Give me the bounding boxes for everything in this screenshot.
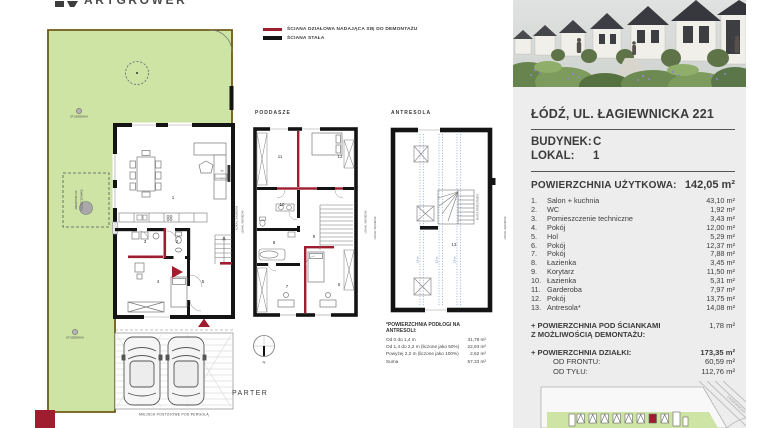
tv-icon xyxy=(228,165,231,182)
svg-text:5: 5 xyxy=(202,279,205,284)
svg-text:STUDZIENKA: STUDZIENKA xyxy=(66,336,84,340)
svg-text:10: 10 xyxy=(280,202,285,207)
svg-text:1,4 m: 1,4 m xyxy=(453,257,457,264)
plan-sheet: ARTGROWER ŚCIANA DZIAŁOWA NADAJĄCA SIĘ D… xyxy=(0,0,760,428)
svg-text:11: 11 xyxy=(278,154,283,159)
antresola-area-footnote: *POWIERZCHNIA PODŁOGI NA ANTRESOLI: Od 0… xyxy=(386,322,486,365)
svg-text:LOKAL SĄSIEDNI: LOKAL SĄSIEDNI xyxy=(503,216,507,239)
walls-extra-value: 1,78 m² xyxy=(709,321,735,339)
svg-text:12: 12 xyxy=(338,154,343,159)
highlighted-unit xyxy=(649,414,657,423)
info-panel: ŁÓDŹ, UL. ŁAGIEWNICKA 221 BUDYNEK:C LOKA… xyxy=(513,0,746,428)
address: ŁÓDŹ, UL. ŁAGIEWNICKA 221 xyxy=(531,107,735,121)
svg-text:13: 13 xyxy=(452,242,457,247)
usable-area-value: 142,05 m² xyxy=(685,179,735,191)
svg-text:ŁAGIEWNICKA: ŁAGIEWNICKA xyxy=(726,395,746,415)
svg-text:3: 3 xyxy=(144,239,147,244)
unit-specs: BUDYNEK:C LOKAL:1 xyxy=(531,135,735,163)
artgrower-logo-icon xyxy=(54,0,80,7)
divider xyxy=(531,171,735,172)
svg-text:LOKAL SĄSIEDNI: LOKAL SĄSIEDNI xyxy=(235,206,239,231)
development-photo xyxy=(513,0,746,87)
walls-extra-area: + POWIERZCHNIA POD ŚCIANKAMI Z MOŻLIWOŚC… xyxy=(531,321,735,339)
plot-total-row: + POWIERZCHNIA DZIAŁKI:173,35 m² xyxy=(531,348,735,357)
svg-text:STUDZIENKA: STUDZIENKA xyxy=(70,115,88,119)
logo-text: ARTGROWER xyxy=(84,0,204,7)
parter-caption: PARTER xyxy=(232,390,268,397)
room-table: 1.Salon + kuchnia43,10 m² 2.WC1,92 m² 3.… xyxy=(531,197,735,313)
room-row: 1.Salon + kuchnia43,10 m² xyxy=(531,197,735,206)
house-parter: TV KOMINEK xyxy=(113,123,234,320)
car-icon xyxy=(122,337,162,405)
footnote-row: Od 0 do 1,4 m31,78 m² xyxy=(386,336,486,343)
building-row: BUDYNEK:C xyxy=(531,135,735,149)
svg-text:LOKAL SĄSIEDNI: LOKAL SĄSIEDNI xyxy=(373,216,377,239)
svg-text:LOKAL SĄSIEDNI: LOKAL SĄSIEDNI xyxy=(364,210,368,233)
svg-text:TV: TV xyxy=(220,169,224,173)
footnote-row: Suma57,33 m² xyxy=(386,358,486,365)
brand-red-square xyxy=(35,410,55,428)
svg-text:N: N xyxy=(263,360,266,365)
north-compass-icon: N xyxy=(250,333,282,366)
unit-row: LOKAL:1 xyxy=(531,149,735,163)
unit-value: 1 xyxy=(593,150,599,162)
plot-front-row: OD FRONTU:60,59 m² xyxy=(531,357,735,366)
svg-text:ZBIORNIK NA: ZBIORNIK NA xyxy=(74,190,78,209)
footnote-row: Powyżej 2,2 m (liczone jako 100%)2,62 m² xyxy=(386,350,486,357)
building-value: C xyxy=(593,136,601,148)
svg-text:KOMINEK: KOMINEK xyxy=(216,178,227,180)
svg-text:DESZCZÓWKĘ: DESZCZÓWKĘ xyxy=(79,189,84,210)
site-plan: ŁAGIEWNICKA xyxy=(513,381,746,428)
chimney-icon xyxy=(491,178,496,185)
entrance-marker-front xyxy=(198,319,210,328)
kitchen-counter xyxy=(119,213,207,222)
room-row: 13.Antresola*14,08 m² xyxy=(531,304,735,313)
divider xyxy=(531,129,735,130)
floor-plan-antresola: ANTRESOLA 1,4 m 2,2 m 1,4 m xyxy=(370,100,512,320)
svg-text:PUSTA PRZESTRZEŃ: PUSTA PRZESTRZEŃ xyxy=(476,194,480,220)
footnote-row: Od 1,4 do 2,2 m (liczone jako 50%)22,93 … xyxy=(386,343,486,350)
car-icon xyxy=(166,337,206,405)
plot-area: + POWIERZCHNIA DZIAŁKI:173,35 m² OD FRON… xyxy=(531,348,735,376)
svg-text:1,4 m: 1,4 m xyxy=(416,257,420,264)
usable-area-row: POWIERZCHNIA UŻYTKOWA: 142,05 m² xyxy=(531,179,735,191)
svg-text:4: 4 xyxy=(157,279,160,284)
room-row: 4.Pokój12,00 m² xyxy=(531,224,735,233)
drain-well-icon xyxy=(72,329,77,334)
svg-text:2: 2 xyxy=(176,239,179,244)
drain-well-icon xyxy=(76,108,81,113)
svg-text:ANTRESOLA: ANTRESOLA xyxy=(391,110,431,116)
plot-back-row: OD TYŁU:112,76 m² xyxy=(531,367,735,376)
pergola-parking: MIEJSCA POSTOJOWE POD PERGOLĄ xyxy=(115,330,233,417)
artgrower-logo: ARTGROWER xyxy=(84,0,204,7)
svg-text:1: 1 xyxy=(172,195,175,200)
svg-text:2,2 m: 2,2 m xyxy=(435,257,439,264)
floor-plan-poddasze: PODDASZE xyxy=(240,100,370,325)
svg-text:MIEJSCA POSTOJOWE POD PERGOLĄ: MIEJSCA POSTOJOWE POD PERGOLĄ xyxy=(139,413,209,417)
svg-text:LOKAL SĄSIEDNI: LOKAL SĄSIEDNI xyxy=(241,210,245,233)
svg-text:PODDASZE: PODDASZE xyxy=(255,110,291,116)
